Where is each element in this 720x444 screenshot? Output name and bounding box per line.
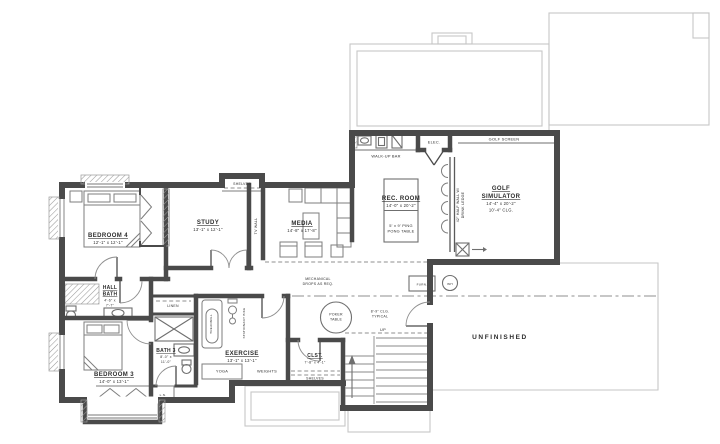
room-label-exercise: EXERCISE (225, 351, 259, 357)
closet-back-wall-hatch (163, 189, 170, 246)
garage-outline (350, 44, 549, 133)
bath3-dims-1: 8'-0" x (160, 355, 171, 359)
room-dims-exercise: 13'-1" x 13'-1" (227, 358, 257, 363)
hall-bath-dims-2: 7'-7" (106, 304, 115, 308)
tv-wall-label: TV WALL (254, 218, 258, 235)
garage-outline-inner (357, 51, 542, 126)
ceiling-note-2: TYPICAL (372, 315, 388, 319)
bed-bedroom3 (84, 322, 122, 370)
shelves-clst-label: SHELVES (306, 377, 324, 381)
elec-door (424, 150, 434, 165)
above-floor-outlines (245, 13, 709, 432)
linen-label: LINEN (167, 304, 179, 308)
toilet (66, 306, 76, 311)
room-dims-bedroom3: 14'-0" x 13'-1" (99, 379, 129, 384)
hall-bath-label-2: BATH (103, 292, 118, 298)
treadmill-label: TREADMILL (209, 314, 213, 334)
hall-bath-label-1: HALL (103, 285, 118, 291)
window-well (49, 333, 59, 371)
room-label-rec-room: REC. ROOM (382, 196, 420, 202)
ceiling-note-1: 8'-9" CLG. (371, 310, 390, 314)
half-wall-label-1: 42" HALF WALL W/ (456, 188, 460, 223)
room-dims-rec-room: 14'-0" x 20'-2" (386, 203, 416, 208)
bay-window-opening (87, 397, 158, 404)
bar-fixtures (353, 135, 418, 150)
media-chair (280, 242, 297, 257)
room-label-golf-1: GOLF (492, 186, 510, 192)
floor-plan-drawing: BEDROOM 4 12'-1" x 12'-1" STUDY 13'-1" x… (0, 0, 720, 444)
bar-stool (442, 220, 448, 233)
end-table (289, 189, 302, 202)
room-dims-study: 13'-1" x 12'-1" (193, 227, 223, 232)
yoga-label: YOGA (216, 369, 228, 374)
room-label-bedroom3: BEDROOM 3 (94, 372, 134, 378)
water-heater-label: WH (447, 282, 453, 286)
room-dims-golf: 14'-4" x 20'-2" (486, 201, 516, 206)
stationary-bike-label: STATIONARY BIKE (242, 308, 246, 339)
ping-pong-note-1: 5' x 9' PING (389, 223, 413, 228)
room-label-bedroom4: BEDROOM 4 (88, 233, 128, 239)
half-wall-label-2: DRINK LEDGE (461, 191, 465, 218)
ping-pong-note-2: PONG TABLE (387, 229, 414, 234)
shelves-study-label: SHELVES (233, 182, 251, 186)
room-label-media: MEDIA (291, 221, 313, 227)
patio-outline-left-inner (251, 392, 339, 420)
furnace-label: FURN. (417, 283, 428, 287)
bath3-dims-2: 11'-0" (161, 360, 172, 364)
room-dims-media: 14'-8" x 17'-8" (287, 228, 317, 233)
room-ceiling-golf: 10'-4" CLG. (489, 208, 513, 213)
ln-label: L.N. (160, 393, 167, 397)
bar-stool (442, 183, 448, 196)
exercise-furniture (202, 299, 242, 379)
elec-label: ELEC. (428, 140, 441, 145)
closet-bifold-door (141, 221, 152, 245)
bath3-fixtures (155, 317, 194, 374)
closet-bifold-door (141, 195, 152, 219)
stairs-up-label: UP (380, 327, 386, 332)
room-label-golf-2: SIMULATOR (482, 194, 521, 200)
garage-bump-inner (438, 36, 466, 44)
golf-screen-label: GOLF SCREEN (489, 137, 520, 142)
bath3-sink (174, 344, 194, 356)
room-dims-bedroom4: 12'-1" x 12'-1" (93, 240, 123, 245)
patio-outline-stairs (348, 408, 430, 432)
media-chair (305, 242, 322, 257)
labels: BEDROOM 4 12'-1" x 12'-1" STUDY 13'-1" x… (88, 137, 528, 398)
poker-label-2: TABLE (330, 318, 342, 322)
floor-plan-page: BEDROOM 4 12'-1" x 12'-1" STUDY 13'-1" x… (0, 0, 720, 444)
bar-stool (442, 202, 448, 215)
sectional-sofa (305, 188, 321, 203)
stairs (345, 336, 427, 404)
bar-fridge (376, 135, 387, 148)
mech-note-1: MECHANICAL (305, 277, 330, 281)
window-well (49, 197, 59, 239)
walk-up-bar-label: WALK-UP BAR (371, 154, 400, 159)
room-label-clst: CLST. (307, 353, 323, 359)
room-dims-clst: 7'-8" x 4'-1" (305, 361, 326, 365)
reference-lines (265, 262, 656, 333)
nightstand (70, 191, 82, 202)
hall-bath-fixtures (65, 284, 132, 319)
bar-stool (442, 165, 448, 178)
hall-bath-dims-1: 4'-6" x (104, 299, 115, 303)
bathtub (65, 284, 99, 304)
right-wing-outline (549, 13, 709, 125)
room-label-study: STUDY (197, 220, 219, 226)
mech-note-2: DROPS AS REQ. (303, 282, 334, 286)
poker-label-1: POKER (329, 313, 343, 317)
stationary-bike-handle (228, 299, 237, 303)
unfinished-boundary (432, 263, 658, 390)
weights-label: WEIGHTS (257, 369, 277, 374)
room-label-unfinished: UNFINISHED (472, 334, 528, 341)
room-label-bath3: BATH 3 (156, 348, 176, 354)
right-wing-corner (693, 13, 709, 38)
stationary-bike-wheel (229, 306, 237, 314)
